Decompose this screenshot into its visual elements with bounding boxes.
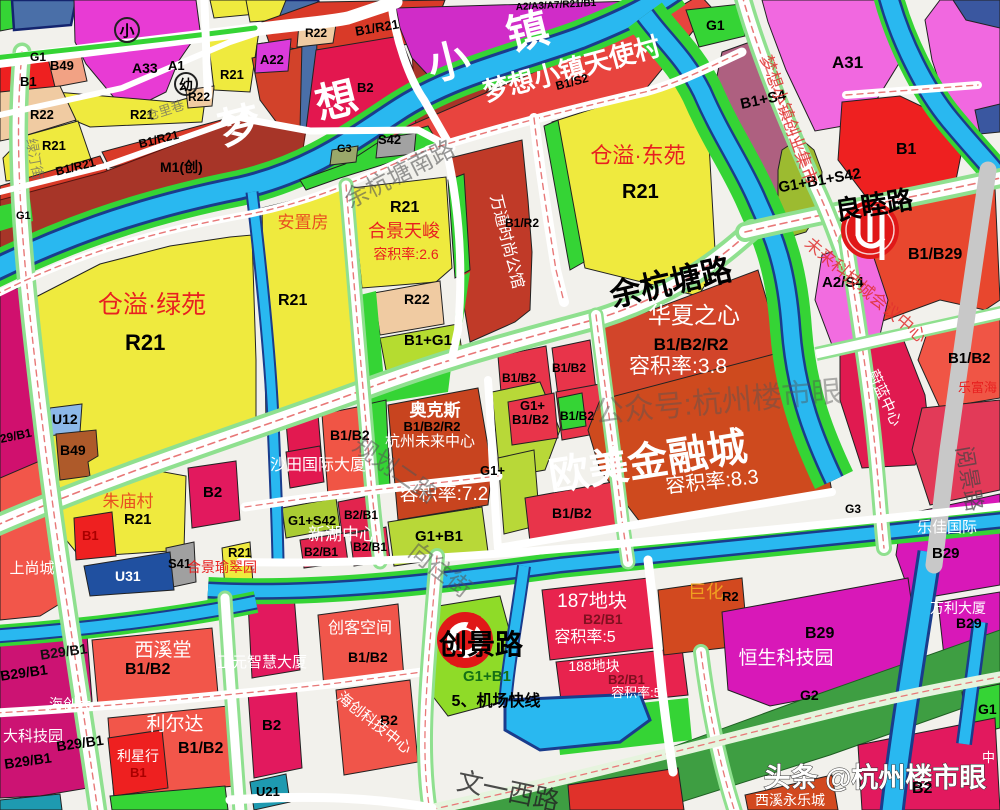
svg-text:恒生科技园: 恒生科技园: [738, 647, 833, 669]
svg-text:187地块: 187地块: [557, 590, 627, 612]
svg-text:U21: U21: [256, 784, 280, 799]
svg-text:R22: R22: [30, 107, 54, 122]
svg-text:G1+B1: G1+B1: [463, 668, 511, 685]
svg-text:G2: G2: [800, 687, 819, 703]
svg-text:B1/B2: B1/B2: [125, 661, 170, 678]
svg-text:合景瑜翠园: 合景瑜翠园: [187, 559, 257, 575]
svg-text:G1: G1: [16, 210, 31, 222]
svg-text:G1: G1: [706, 17, 725, 33]
svg-text:小: 小: [119, 23, 134, 40]
svg-text:B1: B1: [82, 528, 99, 543]
svg-text:G3: G3: [337, 143, 352, 155]
svg-text:B1/B2/R2: B1/B2/R2: [403, 419, 460, 434]
svg-text:上尚城: 上尚城: [9, 560, 54, 577]
svg-text:中: 中: [982, 750, 995, 765]
svg-text:B1/R2: B1/R2: [505, 216, 539, 230]
svg-text:R22: R22: [188, 90, 210, 104]
svg-text:G1: G1: [978, 701, 997, 717]
svg-text:A31: A31: [832, 53, 863, 72]
svg-text:R21: R21: [390, 199, 419, 216]
svg-text:杭州未来中心: 杭州未来中心: [385, 433, 475, 450]
svg-text:B2: B2: [203, 484, 222, 501]
svg-text:U31: U31: [115, 568, 141, 584]
svg-text:R22: R22: [305, 26, 327, 40]
svg-text:R21: R21: [124, 511, 152, 528]
svg-text:容积率:3.8: 容积率:3.8: [629, 355, 727, 378]
svg-text:B2: B2: [912, 780, 933, 797]
svg-text:B2/B1: B2/B1: [353, 540, 387, 554]
svg-text:正元智慧大厦: 正元智慧大厦: [217, 653, 307, 671]
svg-text:M1(创): M1(创): [160, 159, 203, 175]
svg-text:B1/B2: B1/B2: [178, 740, 223, 757]
svg-text:B1/B2: B1/B2: [502, 371, 536, 385]
svg-text:B1/B2: B1/B2: [552, 361, 586, 375]
svg-text:B1/B2: B1/B2: [348, 649, 388, 665]
svg-text:乐富海: 乐富海: [958, 380, 997, 395]
svg-text:A22: A22: [260, 52, 284, 67]
svg-text:A1: A1: [168, 58, 185, 73]
svg-text:B1/B2/R2: B1/B2/R2: [654, 335, 729, 354]
svg-text:容积率:5: 容积率:5: [611, 685, 661, 700]
svg-text:B2: B2: [357, 80, 374, 95]
svg-text:R21: R21: [622, 181, 659, 203]
svg-text:容积率:2.6: 容积率:2.6: [373, 246, 439, 262]
svg-text:乐佳国际: 乐佳国际: [917, 519, 977, 536]
svg-text:R21: R21: [125, 330, 165, 355]
svg-text:B1/B2: B1/B2: [512, 412, 549, 427]
svg-text:S42: S42: [378, 132, 401, 147]
svg-text:B1: B1: [20, 74, 37, 89]
svg-text:B49: B49: [50, 58, 74, 73]
svg-text:R21: R21: [42, 138, 66, 153]
svg-text:创景路: 创景路: [438, 629, 524, 660]
svg-text:西溪堂: 西溪堂: [134, 639, 191, 661]
svg-text:合景天峻: 合景天峻: [368, 221, 440, 241]
svg-text:B2/B1: B2/B1: [583, 611, 623, 627]
svg-text:B29: B29: [805, 625, 834, 642]
svg-text:巨化: 巨化: [688, 582, 724, 602]
svg-text:B2/B1: B2/B1: [344, 508, 378, 522]
svg-text:万利大厦: 万利大厦: [930, 600, 986, 616]
svg-text:G1+: G1+: [480, 463, 505, 478]
svg-text:B2: B2: [262, 717, 281, 734]
svg-text:B49: B49: [60, 442, 86, 458]
svg-text:G3: G3: [845, 502, 861, 516]
svg-text:B29: B29: [932, 545, 960, 562]
svg-text:B1/B2: B1/B2: [948, 350, 991, 367]
svg-text:R21: R21: [228, 545, 252, 560]
svg-text:R21: R21: [220, 67, 244, 82]
svg-text:仓溢·东苑: 仓溢·东苑: [590, 143, 685, 168]
svg-text:西溪永乐城: 西溪永乐城: [755, 792, 825, 808]
svg-text:沙田国际大厦: 沙田国际大厦: [270, 456, 366, 474]
svg-text:利星行: 利星行: [117, 748, 159, 764]
svg-text:B1/B2: B1/B2: [552, 505, 592, 521]
svg-text:容积率:5: 容积率:5: [554, 628, 615, 646]
svg-text:B1: B1: [896, 141, 917, 158]
svg-text:G1+: G1+: [520, 398, 545, 413]
svg-text:朱庙村: 朱庙村: [103, 492, 154, 511]
svg-text:R2: R2: [722, 589, 739, 604]
svg-text:R21: R21: [278, 292, 307, 309]
svg-text:G1: G1: [30, 50, 46, 64]
svg-text:华夏之心: 华夏之心: [648, 302, 740, 328]
svg-text:B2/B1: B2/B1: [304, 545, 338, 559]
svg-text:创客空间: 创客空间: [328, 619, 392, 637]
svg-text:奥克斯: 奥克斯: [410, 400, 461, 420]
svg-text:海创大: 海创大: [49, 696, 91, 712]
svg-text:B1/B2: B1/B2: [560, 409, 594, 423]
svg-text:B1+G1: B1+G1: [404, 332, 452, 349]
svg-text:U12: U12: [52, 411, 78, 427]
svg-text:R22: R22: [404, 291, 430, 307]
svg-text:安置房: 安置房: [278, 213, 329, 232]
svg-text:利尔达: 利尔达: [146, 713, 203, 735]
svg-text:仓溢·绿苑: 仓溢·绿苑: [98, 291, 206, 319]
svg-text:B1/B29: B1/B29: [908, 246, 962, 263]
svg-text:大科技园: 大科技园: [3, 728, 63, 745]
svg-text:5、机场快线: 5、机场快线: [452, 691, 541, 710]
svg-text:A33: A33: [132, 60, 158, 76]
svg-text:头条 @杭州楼市眼: 头条 @杭州楼市眼: [764, 762, 987, 793]
svg-text:B29: B29: [956, 615, 982, 631]
svg-text:B1: B1: [130, 765, 147, 780]
